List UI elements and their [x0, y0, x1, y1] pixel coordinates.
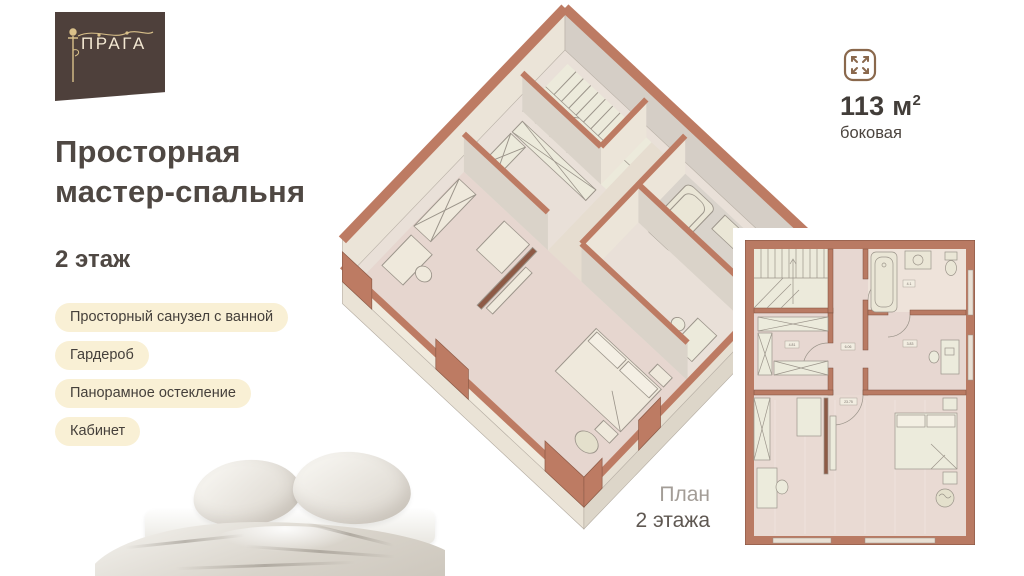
plan-caption-line1: План [635, 482, 710, 508]
area-sup: 2 [913, 92, 922, 109]
page-title: Просторная мастер-спальня [55, 132, 305, 212]
svg-text:23.75: 23.75 [844, 400, 853, 404]
feature-pill-wardrobe: Гардероб [55, 341, 149, 370]
layout-type: боковая [840, 124, 990, 143]
floor-plan-2d: 4.81 6.06 3.83 4.1 23.75 [745, 240, 975, 545]
svg-text:4.81: 4.81 [789, 343, 796, 347]
expand-arrows-icon [843, 48, 877, 82]
feature-pill-glazing: Панорамное остекление [55, 379, 251, 408]
area-badge: 113 м2 боковая [840, 48, 990, 143]
page-title-line1: Просторная [55, 132, 305, 172]
bed-photo [95, 438, 445, 576]
brand-logo: ПРАГА [55, 12, 165, 101]
area-value: 113 м2 [840, 91, 990, 122]
floor-label: 2 этаж [55, 246, 130, 274]
floor-plan-2d-card: 4.81 6.06 3.83 4.1 23.75 [733, 228, 987, 562]
brand-name: ПРАГА [81, 34, 147, 54]
slide: ПРАГА Просторная мастер-спальня 2 этаж П… [0, 0, 1024, 576]
feature-pill-bathroom: Просторный санузел с ванной [55, 303, 288, 332]
plan-caption: План 2 этажа [635, 482, 710, 534]
feature-list: Просторный санузел с ванной Гардероб Пан… [55, 303, 288, 446]
page-title-line2: мастер-спальня [55, 172, 305, 212]
plan-caption-line2: 2 этажа [635, 508, 710, 534]
svg-text:6.06: 6.06 [845, 345, 852, 349]
svg-text:3.83: 3.83 [907, 342, 914, 346]
svg-text:4.1: 4.1 [907, 282, 912, 286]
